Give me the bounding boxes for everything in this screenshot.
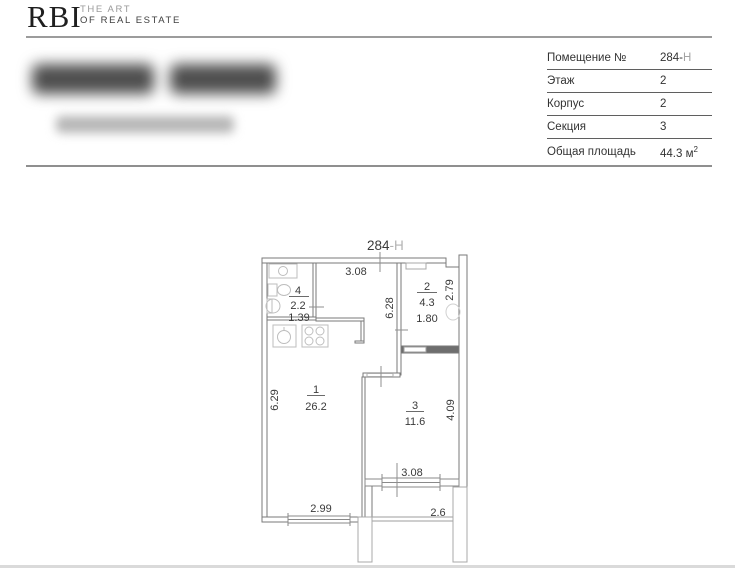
- redacted-word: [32, 64, 154, 94]
- balcony-right-pillar: [453, 487, 467, 562]
- toilet-icon: [268, 284, 291, 296]
- rbi-logo: RBI: [27, 0, 82, 34]
- room3-door-opening: [367, 374, 393, 377]
- dim-room2-depth: 2.79: [444, 279, 456, 300]
- redacted-word: [170, 64, 276, 94]
- plan-unit-number: 284-Н: [367, 238, 404, 253]
- row-value: 2: [660, 98, 712, 110]
- washbasin-icon: [446, 304, 460, 320]
- tagline-line2: OF REAL ESTATE: [80, 16, 181, 27]
- row-value: 284-Н: [660, 52, 712, 64]
- room1-room3-wall: [362, 377, 365, 517]
- tagline-line1: THE ART: [80, 5, 181, 16]
- stove-icon: [302, 325, 328, 347]
- balcony-left-pillar: [358, 517, 372, 562]
- table-row-total-area: Общая площадь 44.3 м2: [547, 139, 712, 165]
- dim-room1-depth: 6.29: [269, 389, 281, 410]
- content-divider: [26, 165, 712, 167]
- table-row-building: Корпус 2: [547, 93, 712, 116]
- header-divider: [26, 36, 712, 38]
- room2-number: 2: [424, 281, 430, 293]
- left-outer-wall: [262, 258, 267, 522]
- floor-plan: 284-Н: [250, 230, 480, 568]
- project-name-redacted: [32, 64, 292, 98]
- row-label: Секция: [547, 121, 660, 133]
- top-outer-wall: [262, 258, 446, 263]
- project-subtitle-redacted: [56, 116, 234, 133]
- unit-info-table: Помещение № 284-Н Этаж 2 Корпус 2 Секция…: [547, 47, 712, 165]
- room1-number: 1: [313, 384, 319, 396]
- dim-balcony-opening: 3.08: [401, 467, 422, 479]
- row-value: 2: [660, 75, 712, 87]
- row-value: 3: [660, 121, 712, 133]
- row-value: 44.3 м2: [660, 145, 712, 160]
- room4-number: 4: [295, 285, 301, 297]
- washing-machine-icon: [269, 264, 297, 278]
- dim-top-width: 3.08: [345, 266, 366, 278]
- row-label: Помещение №: [547, 52, 660, 64]
- room4-width: 1.39: [288, 312, 309, 324]
- kitchen-wall-stub: [361, 321, 364, 343]
- row-label: Общая площадь: [547, 146, 660, 158]
- table-row-section: Секция 3: [547, 116, 712, 139]
- room3-number: 3: [412, 400, 418, 412]
- room2-width: 1.80: [416, 313, 437, 325]
- hall-right-wall: [397, 263, 401, 375]
- kitchen-wall: [316, 318, 364, 321]
- room2-top-niche: [406, 263, 426, 269]
- table-row-unit-number: Помещение № 284-Н: [547, 47, 712, 70]
- room2-door-opening: [404, 347, 426, 352]
- dim-room1-width: 2.99: [310, 503, 331, 515]
- page: RBI THE ART OF REAL ESTATE Помещение № 2…: [0, 0, 735, 568]
- kitchen-wall-hook: [355, 341, 364, 343]
- room2-area: 4.3: [419, 297, 434, 309]
- bathroom-sink-icon: [266, 299, 280, 313]
- top-right-step: [446, 258, 459, 267]
- kitchen-sink-icon: [273, 325, 296, 347]
- room1-area: 26.2: [305, 401, 326, 413]
- dim-room3-depth: 4.09: [445, 399, 457, 420]
- row-label: Этаж: [547, 75, 660, 87]
- room4-right-wall: [313, 263, 316, 319]
- room3-area: 11.6: [405, 416, 426, 428]
- table-row-floor: Этаж 2: [547, 70, 712, 93]
- dim-balcony-width: 2.6: [430, 507, 445, 519]
- row-label: Корпус: [547, 98, 660, 110]
- right-outer-wall: [459, 255, 467, 487]
- logo-tagline: THE ART OF REAL ESTATE: [80, 5, 181, 26]
- dim-hall-depth: 6.28: [384, 297, 396, 318]
- room4-area: 2.2: [290, 300, 305, 312]
